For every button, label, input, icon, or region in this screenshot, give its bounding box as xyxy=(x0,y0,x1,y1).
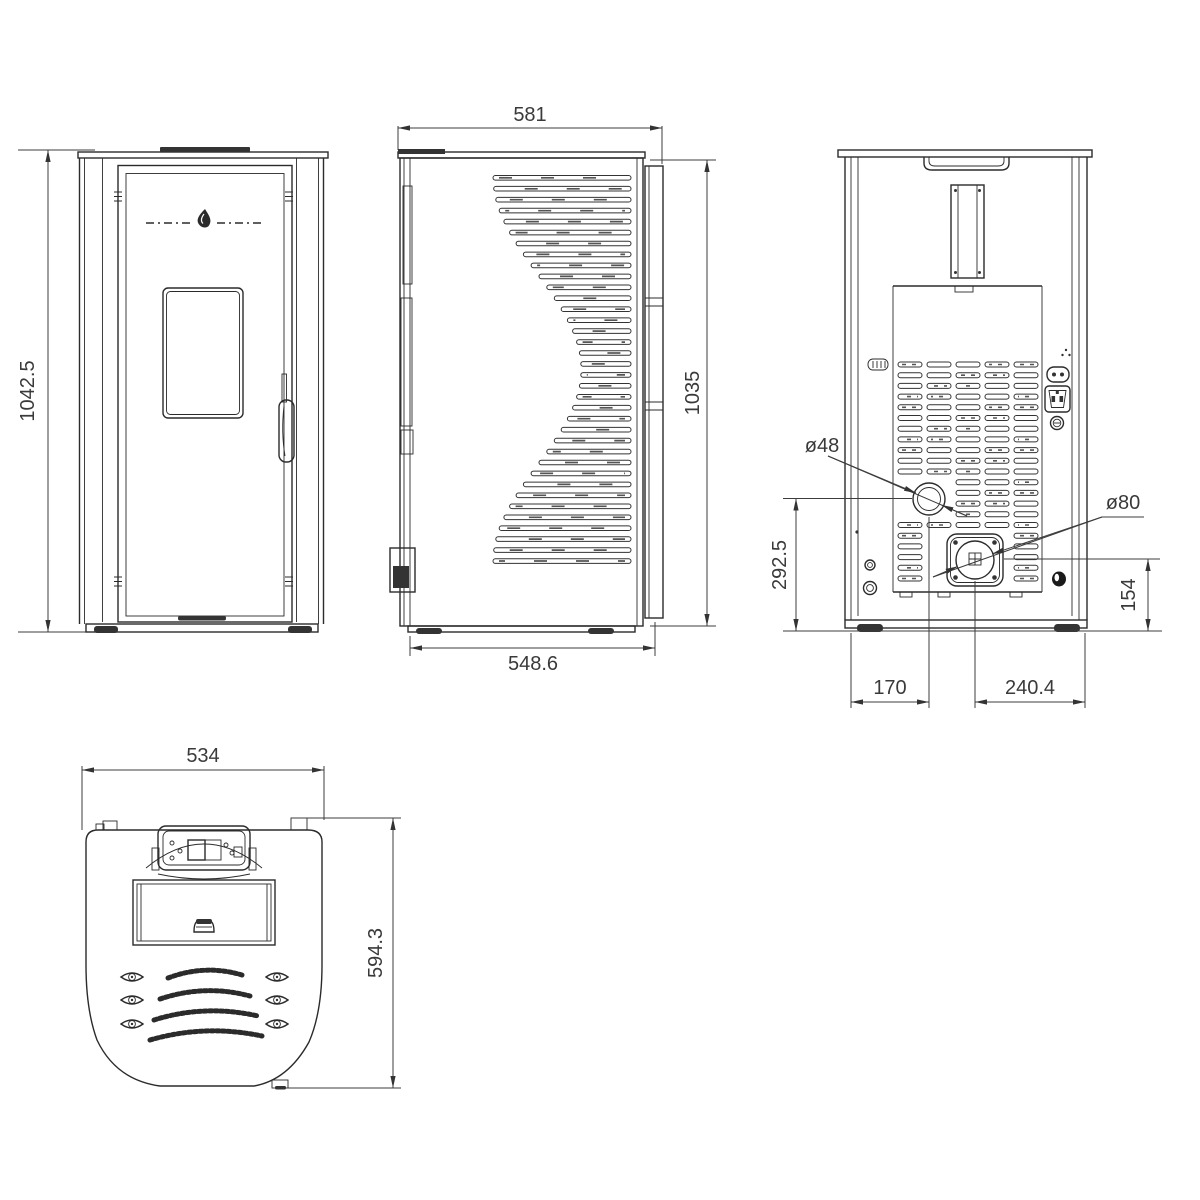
dim-top-depth: 594.3 xyxy=(285,818,401,1088)
dim-label-flue-height: 154 xyxy=(1118,578,1140,611)
top-view: 534 xyxy=(82,745,401,1090)
top-body-outline xyxy=(86,818,322,1090)
back-base xyxy=(845,620,1087,632)
side-rear-cover xyxy=(645,166,663,618)
side-body xyxy=(390,149,663,626)
back-panel xyxy=(868,286,1042,597)
back-view: ø48 ø80 292.5 154 xyxy=(769,150,1162,708)
dim-air-inlet-height: 292.5 xyxy=(769,499,1162,632)
hopper-lid xyxy=(133,880,275,945)
side-front-edge-details xyxy=(390,186,415,592)
dim-side-depth-bottom: 548.6 xyxy=(410,622,655,675)
dim-side-width-top: 581 xyxy=(398,104,662,164)
dim-top-width: 534 xyxy=(82,745,324,830)
oval-vent xyxy=(266,996,288,1004)
door-hinge-marks xyxy=(114,192,293,586)
cable-grommets xyxy=(864,560,877,595)
technical-drawing-page: 1042.5 xyxy=(0,0,1200,1200)
pellet-stove-technical-drawing: 1042.5 xyxy=(0,0,1200,1200)
brand-flame-logo xyxy=(146,209,264,228)
fuse-holder xyxy=(1051,417,1064,430)
dim-flue-offset: 240.4 xyxy=(975,581,1085,708)
side-vent-slots xyxy=(493,176,631,564)
lid-handle xyxy=(194,919,214,932)
curved-grill-vents xyxy=(150,970,262,1040)
small-wall-vent xyxy=(868,359,888,370)
flue-support-bracket xyxy=(951,185,984,278)
dim-side-height: 1035 xyxy=(650,160,716,626)
dim-label-side-depth-bottom: 548.6 xyxy=(508,653,558,675)
control-panel xyxy=(146,826,262,879)
door-window xyxy=(163,288,243,418)
power-socket-cluster xyxy=(1045,349,1071,430)
dim-label-side-height: 1035 xyxy=(682,371,704,416)
oval-vent xyxy=(266,973,288,981)
air-inlet-port xyxy=(913,483,945,515)
front-base xyxy=(86,624,318,633)
dim-label-flue-offset: 240.4 xyxy=(1005,677,1055,699)
side-view: 581 xyxy=(390,104,716,675)
front-top-plate xyxy=(78,147,328,158)
dim-label-flue-diameter: ø80 xyxy=(1106,492,1140,514)
dim-label-air-inlet-diameter: ø48 xyxy=(805,435,839,457)
flame-icon xyxy=(198,209,211,228)
oval-vents xyxy=(121,973,288,1028)
front-door xyxy=(114,166,294,623)
oval-vent xyxy=(266,1020,288,1028)
oval-vent xyxy=(121,996,143,1004)
dim-label-top-depth: 594.3 xyxy=(365,928,387,978)
oval-vent xyxy=(121,973,143,981)
dim-label-top-width: 534 xyxy=(186,745,219,767)
dim-label-front-height: 1042.5 xyxy=(17,360,39,421)
dim-label-side-width-top: 581 xyxy=(513,104,546,126)
iec-power-inlet xyxy=(1045,386,1070,412)
ground-symbol-icon xyxy=(1061,349,1070,356)
side-base xyxy=(408,626,635,634)
back-vent-grid xyxy=(898,362,1038,581)
flue-outlet-port xyxy=(947,534,1003,586)
dim-label-air-inlet-offset: 170 xyxy=(873,677,906,699)
oval-vent xyxy=(121,1020,143,1028)
back-top-plate xyxy=(838,150,1092,170)
dim-front-height: 1042.5 xyxy=(17,150,95,632)
front-view: 1042.5 xyxy=(17,147,328,633)
service-hole xyxy=(1052,572,1066,587)
dim-label-air-inlet-height: 292.5 xyxy=(769,540,791,590)
power-switch xyxy=(1047,367,1069,382)
display-button-left xyxy=(188,840,205,860)
display-button-right xyxy=(205,840,221,860)
